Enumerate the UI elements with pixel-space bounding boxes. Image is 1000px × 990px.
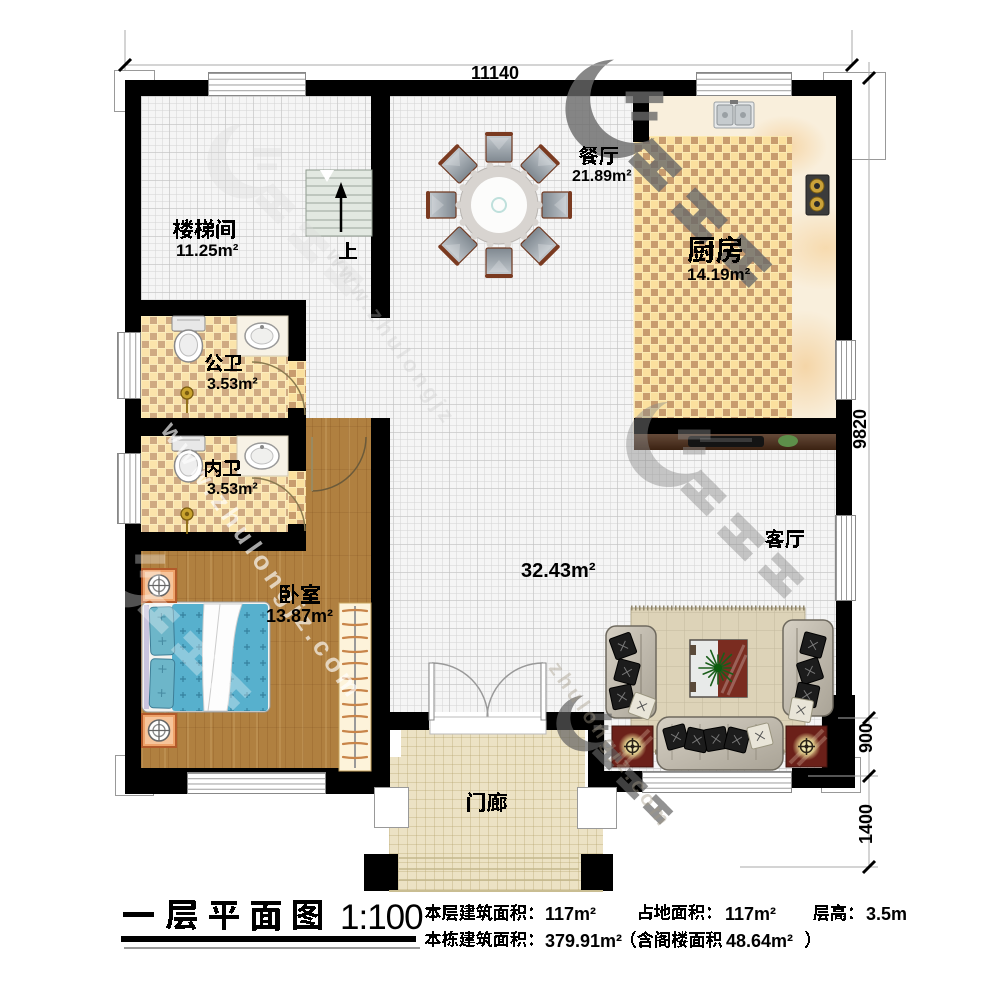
svg-text:1400: 1400 <box>856 804 876 844</box>
svg-text:3.5m: 3.5m <box>866 904 907 924</box>
svg-text:379.91m²: 379.91m² <box>545 931 622 951</box>
svg-text:3.53m²: 3.53m² <box>207 376 258 393</box>
svg-text:48.64m²: 48.64m² <box>726 931 793 951</box>
svg-text:21.89m²: 21.89m² <box>572 168 632 185</box>
svg-text:32.43m²: 32.43m² <box>521 560 596 582</box>
svg-text:1:100: 1:100 <box>340 898 423 937</box>
svg-text:11.25m²: 11.25m² <box>176 241 239 260</box>
svg-text:14.19m²: 14.19m² <box>687 265 751 284</box>
svg-text:www.zhulongjz: www.zhulongjz <box>320 243 462 430</box>
svg-text:9820: 9820 <box>850 409 870 449</box>
svg-text:117m²: 117m² <box>725 904 776 924</box>
svg-text:900: 900 <box>856 723 876 753</box>
svg-text:11140: 11140 <box>471 63 519 83</box>
svg-text:117m²: 117m² <box>545 904 596 924</box>
svg-text:3.53m²: 3.53m² <box>207 481 258 498</box>
svg-text:13.87m²: 13.87m² <box>266 606 333 626</box>
